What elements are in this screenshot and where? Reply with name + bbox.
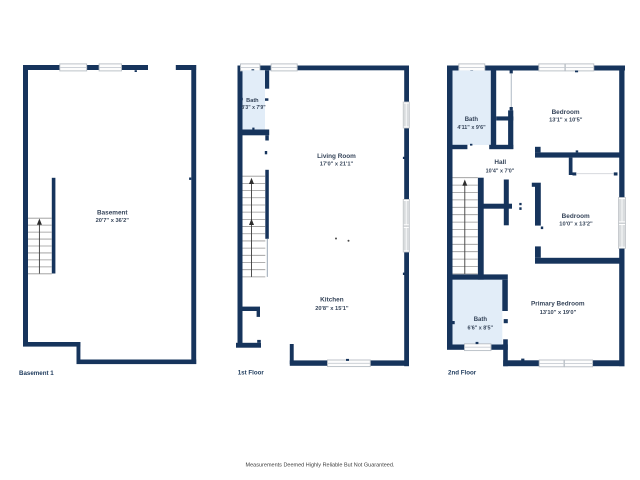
- svg-text:1st Floor: 1st Floor: [238, 370, 265, 377]
- svg-text:10'0" x 13'2": 10'0" x 13'2": [559, 222, 593, 228]
- svg-text:Bedroom: Bedroom: [562, 213, 590, 220]
- svg-text:2nd Floor: 2nd Floor: [448, 370, 477, 377]
- svg-text:13'10" x 19'0": 13'10" x 19'0": [540, 310, 577, 316]
- svg-text:Primary Bedroom: Primary Bedroom: [531, 301, 585, 308]
- svg-text:10'4" x 7'0": 10'4" x 7'0": [486, 168, 515, 174]
- svg-text:20'7" x 36'2": 20'7" x 36'2": [96, 218, 130, 224]
- svg-text:20'8" x 15'1": 20'8" x 15'1": [315, 306, 349, 312]
- svg-text:13'1" x 10'5": 13'1" x 10'5": [549, 118, 583, 124]
- svg-text:Kitchen: Kitchen: [320, 297, 344, 304]
- svg-text:Measurements Deemed Highly Rel: Measurements Deemed Highly Reliable But …: [246, 462, 395, 468]
- svg-text:Living Room: Living Room: [317, 153, 356, 160]
- svg-text:Bath: Bath: [246, 98, 259, 104]
- svg-text:Hall: Hall: [494, 159, 506, 166]
- svg-text:Bath: Bath: [474, 317, 488, 323]
- svg-text:Basement: Basement: [97, 210, 128, 217]
- svg-text:Bath: Bath: [465, 117, 479, 123]
- svg-text:4'11" x 9'6": 4'11" x 9'6": [457, 125, 486, 131]
- svg-text:17'0" x 21'1": 17'0" x 21'1": [320, 162, 354, 168]
- svg-text:6'6" x 8'5": 6'6" x 8'5": [467, 326, 493, 332]
- svg-text:3'3" x 7'9": 3'3" x 7'9": [241, 105, 266, 111]
- svg-text:Basement 1: Basement 1: [19, 370, 54, 377]
- svg-text:Bedroom: Bedroom: [552, 109, 580, 116]
